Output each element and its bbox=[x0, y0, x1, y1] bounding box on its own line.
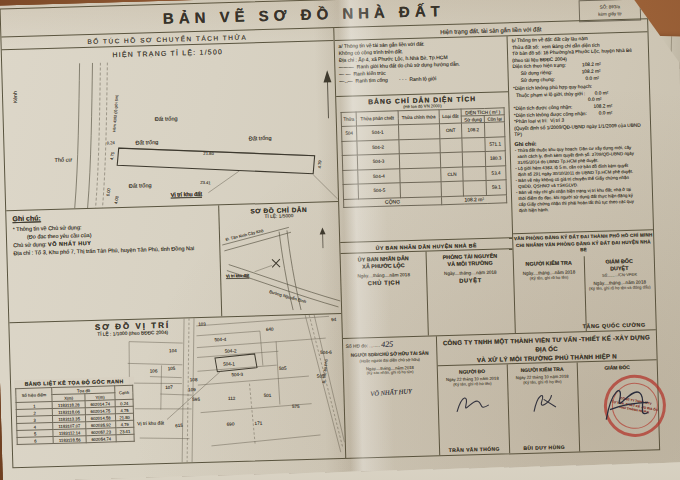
col-su-dung: Sử dụng bbox=[461, 115, 485, 123]
corner-coordinates-table: BẢNG LIỆT KÊ TỌA ĐỘ GÓC RANH Số hiệu điể… bbox=[14, 377, 136, 446]
label-tho-cu: Thổ cư bbox=[54, 156, 72, 163]
corner-box-line2: kèm giấy tờ bbox=[580, 10, 640, 19]
director-cell: GIÁM ĐỐC CÔNG TY TNHH MTV TƯ VẤN -THIẾT … bbox=[576, 360, 659, 451]
left-page: BỔ TÚC HỒ SƠ CHUYỂN TÁCH THỬA HIỆN TRẠNG… bbox=[1, 28, 346, 467]
surveyor-cell: NGƯỜI ĐO Ngày 22 tháng 10 năm 2018 (Ký t… bbox=[437, 364, 508, 455]
company-cells: CÔNG TY TNHH MỘT THÀNH VIÊN TƯ VẤN -THIẾ… bbox=[437, 330, 660, 455]
owner-cell-subtitle: (Hoặc người đại diện chủ sở hữu) bbox=[346, 356, 433, 363]
dim-top: 21.80 bbox=[203, 151, 214, 156]
ubnd-right-date: Ngày....tháng....năm 2018 bbox=[427, 269, 513, 276]
canal-name-label: Kênh bbox=[12, 91, 18, 103]
parcel-number: 501 bbox=[264, 393, 272, 398]
ubnd-signature-block: ỦY BAN NHÂN DÂN HUYỆN NHÀ BÈ ỦY BAN NHÂN… bbox=[340, 238, 515, 338]
vpdk-inspector-cell: NGƯỜI KIỂM TRA Ngày....tháng....năm 2018… bbox=[514, 256, 586, 333]
parcel-number: 505 bbox=[279, 366, 287, 371]
parcel-number: 94 bbox=[331, 317, 337, 322]
total-value: 108.2 m² bbox=[442, 194, 507, 204]
parcel-number: 504-4 bbox=[214, 337, 226, 342]
company-signature-block: Số HĐ đo: ........ 425 NGƯỜI SDĐ/CHỦ SỞ … bbox=[343, 329, 660, 458]
north-arrow-icon bbox=[320, 227, 326, 248]
label-dat-trong: Đất trống bbox=[249, 135, 272, 142]
coord-table: Số hiệu điểm Tọa độ Cạnh X(m) Y(m) bbox=[15, 385, 135, 445]
col-header-point: Số hiệu điểm bbox=[16, 388, 53, 403]
label-dat-trong: Đất trống bbox=[129, 182, 152, 189]
survey-sketch-svg: Đất trống Đất trống Đất trống Đất trống … bbox=[2, 56, 338, 210]
vpdk-header2: CHI NHÁNH VĂN PHÒNG ĐĂNG KÝ ĐẤT ĐAI HUYỆ… bbox=[513, 239, 653, 256]
parcel-number: 104 bbox=[169, 348, 177, 353]
vpdk-right-so: Số:........./CN-VPĐK bbox=[585, 271, 655, 278]
label-dat-trong: Đất trống bbox=[155, 115, 178, 122]
col-chinh-thua: Thửa chỉnh thửa bbox=[398, 110, 440, 125]
photo-scene: Vẽ Phan BẢN VẼ SƠ ĐỒ NHÀ ĐẤT SỐ: 893/a k… bbox=[0, 0, 680, 480]
checker-signature bbox=[526, 389, 561, 416]
parcel-number: 615 bbox=[175, 423, 183, 428]
parcel-number: 108 bbox=[190, 377, 198, 382]
ubnd-right-title2: VÀ MÔI TRƯỜNG bbox=[427, 259, 513, 268]
parcel-number: 106 bbox=[150, 368, 158, 373]
right-page-right-column: b/ Thông tin về đất: đất cây lâu nămThửa… bbox=[507, 32, 656, 333]
parcel-number: 690 bbox=[227, 422, 235, 427]
owner-name: VÕ NHẤT HUY bbox=[48, 240, 92, 247]
location-guide-box: SƠ ĐỒ CHỈ DẪN TỈ LỆ: 1/5000 bbox=[218, 202, 340, 316]
location-x-mark bbox=[254, 259, 280, 272]
surveyor-name: TRẦN VĂN THỐNG bbox=[440, 445, 509, 453]
parcel-number: 112 bbox=[228, 396, 236, 401]
ubnd-right-role: DUYỆT bbox=[428, 276, 514, 284]
dim-small: 0.24 bbox=[107, 140, 116, 145]
vpdk-left-title: NGƯỜI KIỂM TRA bbox=[514, 259, 584, 268]
area-detail-lines: *Diện tích không phù hợp quy hoạch: Thuộ… bbox=[513, 83, 646, 139]
map-vi-tri-label: Vị trí khu đất bbox=[137, 421, 165, 427]
dim-a: 6.00 bbox=[105, 187, 111, 196]
subject-parcel bbox=[117, 143, 315, 180]
guide-vi-tri-label: Vị trí khu đất bbox=[226, 273, 250, 279]
notes-and-guide-row: Ghi chú: * Thông tin về Chủ sử dụng: (Đo… bbox=[6, 201, 341, 322]
road-name-label: Hẻm 4382 (lộ giới 5m) bbox=[112, 94, 119, 132]
survey-labels: Đất trống Đất trống Đất trống Đất trống … bbox=[12, 84, 273, 202]
owner-handwritten-name: VÕ NHẤT HUY bbox=[347, 386, 434, 398]
asset-info-block: a/ Thông tin về tài sản gắn liền với đất… bbox=[334, 36, 508, 97]
area-index-table-block: BẢNG CHỈ DẪN DIỆN TÍCH (Hệ tọa độ VN 200… bbox=[336, 92, 512, 243]
land-info-lines: b/ Thông tin về đất: đất cây lâu nămThửa… bbox=[512, 34, 645, 84]
surveyor-signature bbox=[453, 391, 494, 418]
canal-lines bbox=[71, 62, 112, 208]
notes-lines: - Thửa đất thuộc khu quy hoạch: Dân cư x… bbox=[515, 144, 649, 214]
ubnd-left-title2: XÃ PHƯỚC LỘC bbox=[341, 262, 427, 271]
vpdk-director-cell: GIÁM ĐỐC DUYỆT Số:........./CN-VPĐK Ngày… bbox=[583, 254, 656, 331]
col-loai-dat: Loại đất bbox=[439, 109, 461, 124]
parcel-number: 171 bbox=[254, 421, 262, 426]
right-page-left-column: a/ Thông tin về tài sản gắn liền với đất… bbox=[334, 36, 515, 338]
leader-lines bbox=[208, 168, 338, 203]
ubnd-left-date: Ngày....tháng....năm 2018 bbox=[341, 272, 427, 279]
label-vi-tri-khu-dat: Vị trí khu đất bbox=[171, 191, 203, 198]
checker-name: BÙI DUY HÙNG bbox=[510, 443, 579, 451]
contract-number-value: 425 bbox=[381, 340, 393, 349]
owner-label: Chủ sử dụng: bbox=[13, 241, 46, 248]
land-info-and-notes: b/ Thông tin về đất: đất cây lâu nămThửa… bbox=[508, 32, 653, 233]
area-table: Thửa Thửa phân chiết Thửa chỉnh thửa Loạ… bbox=[340, 107, 507, 207]
parcel-number: 504-6 bbox=[320, 350, 332, 355]
checker-cell: NGƯỜI KIỂM TRA Ngày 22 tháng 10 năm 2018… bbox=[506, 362, 578, 453]
parcel-number: 107 bbox=[165, 385, 173, 390]
parcel-number: 504-3 bbox=[231, 372, 243, 377]
survey-drawing: Đất trống Đất trống Đất trống Đất trống … bbox=[2, 56, 338, 210]
col-phan-chiet: Thửa phân chiết bbox=[357, 111, 398, 126]
director-title: GIÁM ĐỐC bbox=[577, 363, 657, 372]
north-arrow-icon bbox=[323, 70, 332, 118]
total-label: CỘNG bbox=[343, 196, 442, 207]
chi-dan-sketch-svg: Đ. Tân Kinh Cây Khô Đường Nguyễn Bình Vị… bbox=[220, 222, 341, 312]
parcel-number: 595 bbox=[192, 397, 200, 402]
printed-border: BẢN VẼ SƠ ĐỒ NHÀ ĐẤT SỐ: 893/a kèm giấy … bbox=[0, 0, 660, 468]
label-dat-trong: Đất trống bbox=[135, 139, 158, 146]
parcel-number: 575 bbox=[292, 404, 300, 409]
owner-signature-cell: Số HĐ đo: ........ 425 NGƯỜI SDĐ/CHỦ SỞ … bbox=[343, 336, 440, 458]
guide-road2-label: Đường Nguyễn Bình bbox=[269, 289, 308, 304]
contract-number-label: Số HĐ đo: ........ bbox=[346, 343, 380, 349]
parcel-number: 103 bbox=[198, 322, 206, 327]
ubnd-left-role: CHỦ TỊCH bbox=[341, 279, 427, 287]
guide-road1-label: Đ. Tân Kinh Cây Khô bbox=[225, 228, 264, 242]
dim-right: 4.79 bbox=[317, 160, 322, 169]
parcel-number: 640 bbox=[266, 327, 274, 332]
ubnd-commune-cell: ỦY BAN NHÂN DÂN XÃ PHƯỚC LỘC Ngày....thá… bbox=[340, 252, 428, 338]
ubnd-resources-cell: PHÒNG TÀI NGUYÊN VÀ MÔI TRƯỜNG Ngày....t… bbox=[426, 249, 515, 335]
col-header-edge: Cạnh bbox=[115, 385, 133, 399]
parcel-number: 504-1 bbox=[223, 361, 235, 366]
cadastral-position-map: SƠ ĐỒ VỊ TRÍ TỈ LỆ : 1/1000 (theo BĐĐC 2… bbox=[9, 313, 345, 467]
contract-number-line: Số HĐ đo: ........ 425 bbox=[346, 338, 433, 349]
dim-bottom: 23.41 bbox=[200, 180, 211, 185]
director-signature bbox=[597, 378, 652, 429]
parcel-number: 105 bbox=[168, 366, 176, 371]
dim-b: 4.00 bbox=[113, 195, 119, 204]
parcel-number: 109 bbox=[188, 387, 196, 392]
parcel-boundaries bbox=[127, 314, 345, 464]
left-ghi-chu-block: Ghi chú: * Thông tin về Chủ sử dụng: (Đo… bbox=[6, 205, 221, 322]
col-con-lai: Còn lại bbox=[485, 115, 505, 123]
main-document-sheet: BẢN VẼ SƠ ĐỒ NHÀ ĐẤT SỐ: 893/a kèm giấy … bbox=[0, 0, 680, 480]
right-page: Hiện trạng đất, tài sản gắn liền với đất… bbox=[334, 19, 659, 458]
dim-left: 4.75 bbox=[109, 151, 115, 160]
col-thua: Thửa bbox=[341, 112, 357, 126]
guide-labels: Đ. Tân Kinh Cây Khô Đường Nguyễn Bình Vị… bbox=[225, 227, 308, 307]
vpdk-signature-block: VĂN PHÒNG ĐĂNG KÝ ĐẤT ĐAI THÀNH PHỐ HỒ C… bbox=[513, 229, 656, 333]
parcel-number: 504-2 bbox=[225, 348, 237, 353]
subject-parcel-504-1 bbox=[215, 354, 257, 372]
text-line: (Quyết định số 1/2009/QĐ-UBND ngày 1/1/2… bbox=[514, 122, 646, 139]
